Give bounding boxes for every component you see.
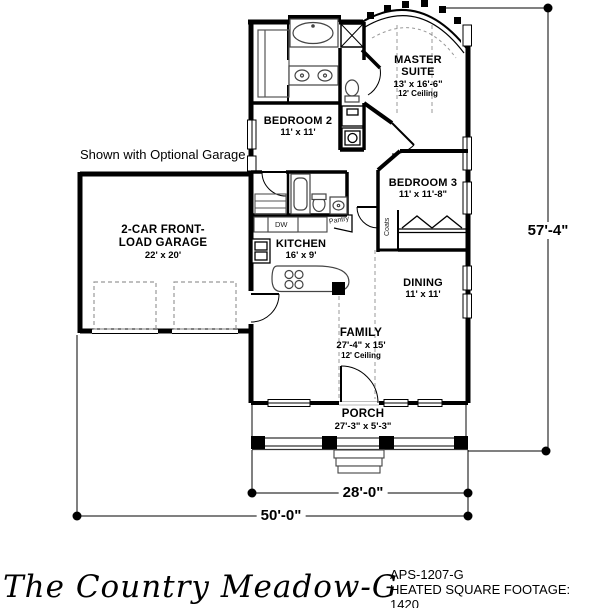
- plan-title: The Country Meadow-G: [3, 569, 398, 605]
- room-name: MASTER SUITE: [382, 54, 454, 79]
- room-dims: 22' x 20': [113, 251, 213, 262]
- dishwasher-label: DW: [275, 220, 288, 229]
- room-dims: 11' x 11': [264, 128, 332, 139]
- heated-square-footage: HEATED SQUARE FOOTAGE: 1420: [390, 583, 600, 608]
- room-name: KITCHEN: [276, 238, 326, 250]
- room-label-family: FAMILY 27'-4" x 15' 12' Ceiling: [336, 327, 385, 360]
- garage-door-tracks: [94, 282, 236, 329]
- room-name: DINING: [403, 277, 443, 289]
- linen-closet: [255, 194, 286, 214]
- room-label-kitchen: KITCHEN 16' x 9': [276, 238, 326, 262]
- coats-label: Coats: [384, 218, 391, 236]
- bay-window: [362, 0, 468, 58]
- room-dims: 11' x 11': [403, 290, 443, 301]
- footage-value: 1420: [390, 597, 419, 608]
- room-label-dining: DINING 11' x 11': [403, 277, 443, 301]
- walk-in-closet: [258, 30, 289, 97]
- room-dims: 11' x 11'-8": [389, 190, 457, 201]
- double-vanity-icon: [289, 66, 338, 85]
- room-label-master-suite: MASTER SUITE 13' x 16'-6" 12' Ceiling: [382, 54, 454, 99]
- structural-post: [332, 282, 345, 295]
- hall-bathtub-icon: [291, 174, 310, 214]
- room-label-bedroom-2: BEDROOM 2 11' x 11': [264, 115, 332, 139]
- room-label-bedroom-3: BEDROOM 3 11' x 11'-8": [389, 177, 457, 201]
- room-dims: 27'-4" x 15': [336, 341, 385, 352]
- footage-label: HEATED SQUARE FOOTAGE:: [390, 582, 570, 597]
- kitchen-counter: [254, 217, 327, 232]
- room-name: 2-CAR FRONT-LOAD GARAGE: [113, 224, 213, 250]
- room-dims: 16' x 9': [276, 251, 326, 262]
- dimension-overall-width: 50'-0": [257, 507, 306, 524]
- bathtub-icon: [290, 19, 338, 47]
- hall-sink-icon: [330, 197, 347, 214]
- washer-dryer-icon: [342, 106, 363, 148]
- room-ceiling: 12' Ceiling: [382, 90, 454, 99]
- room-name: BEDROOM 2: [264, 115, 332, 127]
- hall-toilet-icon: [312, 194, 326, 212]
- plan-id-block: APS-1207-G HEATED SQUARE FOOTAGE: 1420: [390, 568, 600, 608]
- room-name: FAMILY: [336, 327, 385, 340]
- room-name: BEDROOM 3: [389, 177, 457, 189]
- stairs-icon: [334, 450, 384, 473]
- room-name: PORCH: [335, 408, 392, 421]
- dimension-porch-width: 28'-0": [339, 484, 388, 501]
- closet-door-chevrons: [402, 216, 462, 228]
- shower-icon: [341, 24, 363, 47]
- room-dims: 27'-3" x 5'-3": [335, 422, 392, 433]
- plan-number: APS-1207-G: [390, 568, 600, 583]
- floor-plan-page: Shown with Optional Garage MASTER SUITE …: [0, 0, 600, 608]
- room-label-garage: 2-CAR FRONT-LOAD GARAGE 22' x 20': [113, 224, 213, 261]
- optional-garage-note: Shown with Optional Garage: [80, 147, 245, 162]
- range-oven-icon: [252, 239, 270, 263]
- room-label-porch: PORCH 27'-3" x 5'-3": [335, 408, 392, 433]
- dimension-height: 57'-4": [524, 222, 573, 239]
- room-ceiling: 12' Ceiling: [336, 352, 385, 361]
- master-toilet-icon: [345, 80, 359, 102]
